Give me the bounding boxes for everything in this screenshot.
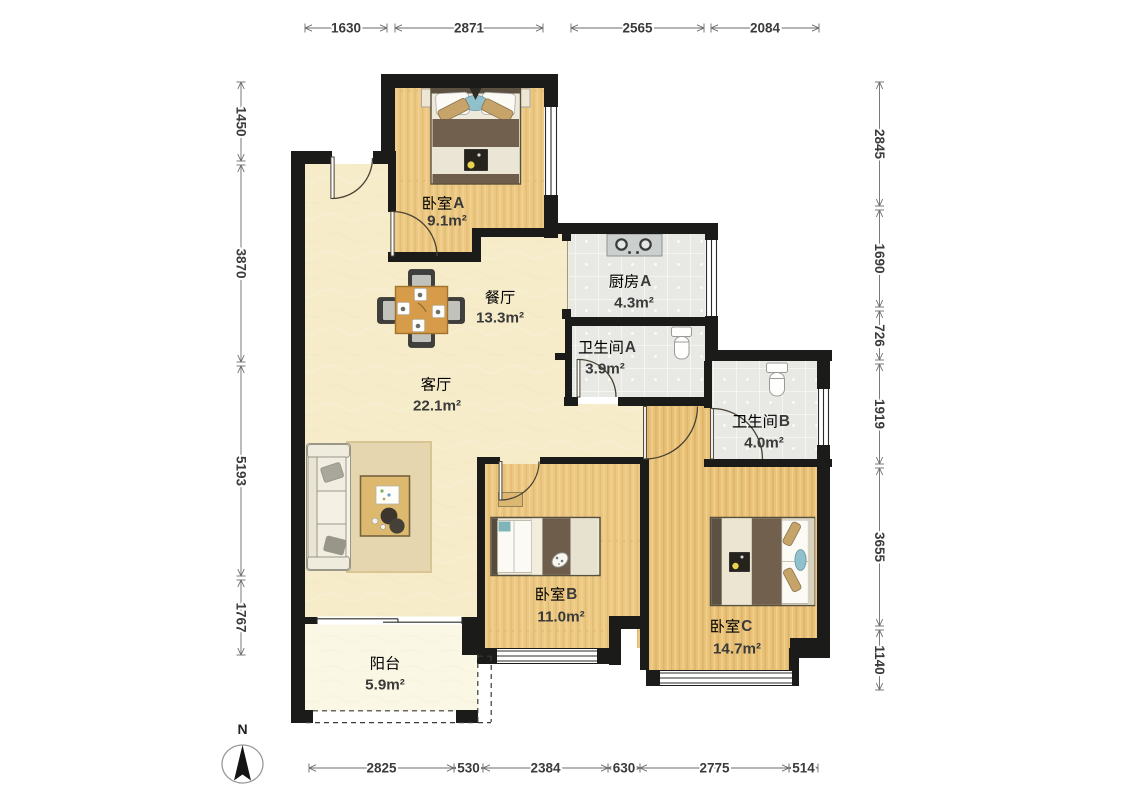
- svg-text:2565: 2565: [622, 21, 653, 36]
- svg-text:A: A: [640, 273, 651, 290]
- svg-text:2845: 2845: [872, 129, 887, 160]
- svg-text:22.1m²: 22.1m²: [413, 398, 461, 415]
- svg-text:4.0m²: 4.0m²: [744, 435, 784, 452]
- svg-text:B: B: [566, 586, 577, 603]
- svg-text:3655: 3655: [872, 532, 887, 563]
- svg-text:13.3m²: 13.3m²: [476, 310, 524, 327]
- svg-text:630: 630: [613, 761, 636, 776]
- svg-text:726: 726: [872, 324, 887, 347]
- svg-text:1919: 1919: [872, 399, 887, 429]
- svg-text:1767: 1767: [234, 602, 249, 632]
- svg-text:A: A: [453, 195, 464, 212]
- svg-text:2084: 2084: [750, 21, 781, 36]
- svg-text:1690: 1690: [872, 243, 887, 273]
- svg-text:2825: 2825: [366, 761, 397, 776]
- svg-text:11.0m²: 11.0m²: [537, 609, 584, 626]
- svg-text:3.9m²: 3.9m²: [585, 361, 625, 378]
- svg-text:3870: 3870: [234, 248, 249, 278]
- svg-text:4.3m²: 4.3m²: [614, 295, 654, 312]
- svg-text:5193: 5193: [234, 456, 249, 487]
- svg-text:1450: 1450: [234, 106, 249, 136]
- svg-text:2871: 2871: [454, 21, 485, 36]
- svg-text:2384: 2384: [530, 761, 561, 776]
- svg-text:1630: 1630: [331, 21, 361, 36]
- svg-text:2775: 2775: [699, 761, 730, 776]
- svg-text:5.9m²: 5.9m²: [365, 677, 405, 694]
- svg-text:514: 514: [792, 761, 815, 776]
- svg-text:1140: 1140: [872, 645, 887, 674]
- svg-text:A: A: [625, 339, 636, 356]
- svg-text:9.1m²: 9.1m²: [427, 213, 467, 230]
- svg-text:N: N: [237, 721, 247, 737]
- svg-text:14.7m²: 14.7m²: [713, 641, 761, 658]
- svg-text:530: 530: [457, 761, 480, 776]
- svg-text:B: B: [779, 413, 790, 430]
- svg-text:C: C: [741, 618, 752, 635]
